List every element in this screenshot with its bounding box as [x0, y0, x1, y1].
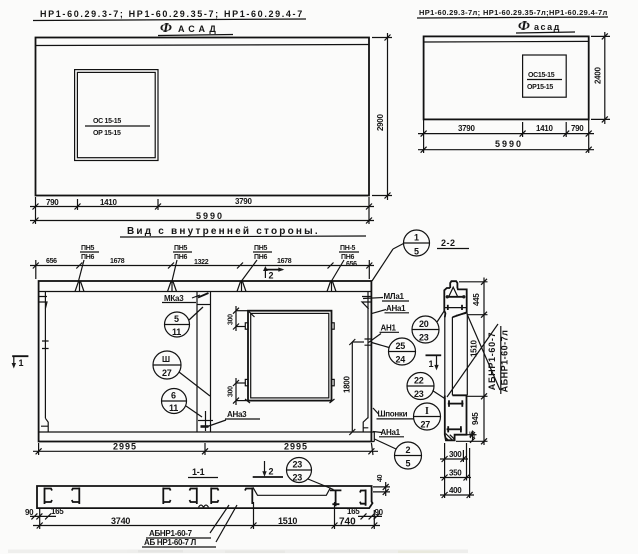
svg-text:3740: 3740 [111, 516, 130, 526]
svg-text:АНа1: АНа1 [386, 304, 406, 313]
svg-text:АБНР1-60-7: АБНР1-60-7 [487, 332, 497, 391]
svg-text:165: 165 [347, 507, 360, 516]
svg-text:5: 5 [406, 459, 411, 469]
svg-text:АБ НР1-60-7 Л: АБ НР1-60-7 Л [144, 538, 197, 547]
svg-text:ПН6: ПН6 [341, 254, 354, 261]
svg-text:22: 22 [414, 376, 424, 386]
svg-text:2: 2 [406, 445, 411, 455]
svg-text:5990: 5990 [196, 211, 224, 221]
svg-text:20: 20 [419, 319, 429, 329]
svg-text:асад: асад [534, 22, 561, 32]
svg-text:2995: 2995 [284, 442, 308, 452]
svg-text:АСАД: АСАД [178, 24, 220, 34]
svg-text:300: 300 [228, 314, 235, 325]
svg-text:ОС15-15: ОС15-15 [528, 72, 555, 79]
svg-text:350: 350 [449, 469, 462, 478]
svg-text:945: 945 [471, 412, 480, 425]
svg-text:2: 2 [269, 271, 274, 281]
svg-text:2900: 2900 [376, 114, 385, 131]
svg-text:2: 2 [269, 467, 274, 477]
svg-text:23: 23 [293, 473, 303, 483]
svg-text:1800: 1800 [343, 376, 352, 393]
svg-text:11: 11 [169, 403, 178, 413]
svg-text:2995: 2995 [113, 442, 137, 452]
svg-text:25: 25 [396, 341, 406, 351]
svg-text:23: 23 [293, 460, 303, 470]
svg-text:2-2: 2-2 [441, 238, 456, 248]
svg-text:ПН6: ПН6 [174, 254, 187, 261]
svg-text:ПН5: ПН5 [81, 245, 94, 252]
svg-text:Шпонки: Шпонки [378, 410, 408, 419]
svg-text:АНа3: АНа3 [227, 410, 247, 419]
svg-text:6: 6 [171, 391, 176, 401]
svg-text:90: 90 [375, 508, 384, 517]
svg-text:1410: 1410 [536, 124, 553, 133]
svg-text:ПН6: ПН6 [81, 254, 94, 261]
svg-text:656: 656 [346, 261, 357, 268]
svg-text:25: 25 [470, 431, 477, 439]
svg-text:5990: 5990 [495, 139, 523, 149]
svg-text:40: 40 [377, 474, 384, 482]
svg-text:24: 24 [396, 355, 406, 365]
svg-text:1322: 1322 [194, 259, 209, 266]
svg-text:23: 23 [419, 333, 429, 343]
svg-text:ПН5: ПН5 [174, 245, 187, 252]
svg-text:1510: 1510 [278, 516, 297, 526]
svg-text:165: 165 [51, 507, 64, 516]
svg-text:790: 790 [571, 124, 584, 133]
svg-text:МКа3: МКа3 [164, 294, 184, 303]
svg-text:ОС 15-15: ОС 15-15 [93, 118, 121, 125]
svg-text:3790: 3790 [235, 197, 252, 206]
svg-text:1: 1 [429, 359, 434, 369]
svg-text:5: 5 [174, 314, 179, 324]
svg-text:ПН-5: ПН-5 [340, 245, 356, 252]
svg-text:790: 790 [46, 198, 59, 207]
svg-text:ОР15-15: ОР15-15 [527, 84, 553, 91]
svg-text:23: 23 [414, 389, 424, 399]
svg-text:445: 445 [472, 293, 481, 306]
svg-text:656: 656 [46, 258, 57, 265]
svg-text:3790: 3790 [458, 124, 475, 133]
svg-text:1: 1 [414, 233, 419, 243]
svg-text:740: 740 [339, 517, 356, 528]
svg-text:ОР 15-15: ОР 15-15 [93, 130, 121, 137]
svg-text:400: 400 [449, 486, 462, 495]
svg-text:Ф: Ф [160, 21, 172, 36]
svg-text:2400: 2400 [594, 67, 603, 84]
svg-text:1: 1 [19, 358, 24, 368]
svg-text:МЛа1: МЛа1 [384, 292, 405, 301]
svg-text:Ф: Ф [518, 19, 530, 34]
svg-text:27: 27 [421, 420, 431, 430]
svg-text:АНа1: АНа1 [381, 428, 401, 437]
svg-text:11: 11 [172, 327, 181, 337]
svg-text:АБНР1-60-7: АБНР1-60-7 [149, 529, 193, 538]
svg-text:1-1: 1-1 [192, 467, 205, 477]
svg-text:АН1: АН1 [381, 324, 397, 333]
svg-text:Ш: Ш [162, 355, 170, 364]
svg-text:27: 27 [162, 368, 172, 378]
svg-text:5: 5 [414, 247, 419, 257]
svg-text:90: 90 [25, 508, 34, 517]
svg-text:Вид с внутренней стороны.: Вид с внутренней стороны. [127, 226, 320, 237]
svg-text:1410: 1410 [100, 198, 117, 207]
svg-text:I: I [425, 406, 429, 417]
svg-text:НР1-60.29.3-7л; НР1-60.29.35-7: НР1-60.29.3-7л; НР1-60.29.35-7л;НР1-60.2… [419, 8, 608, 17]
svg-text:ПН5: ПН5 [254, 245, 267, 252]
svg-text:300: 300 [228, 386, 235, 397]
svg-text:300: 300 [449, 450, 462, 459]
svg-text:1678: 1678 [110, 258, 125, 265]
svg-text:ПН6: ПН6 [254, 254, 267, 261]
svg-text:1678: 1678 [277, 258, 292, 265]
